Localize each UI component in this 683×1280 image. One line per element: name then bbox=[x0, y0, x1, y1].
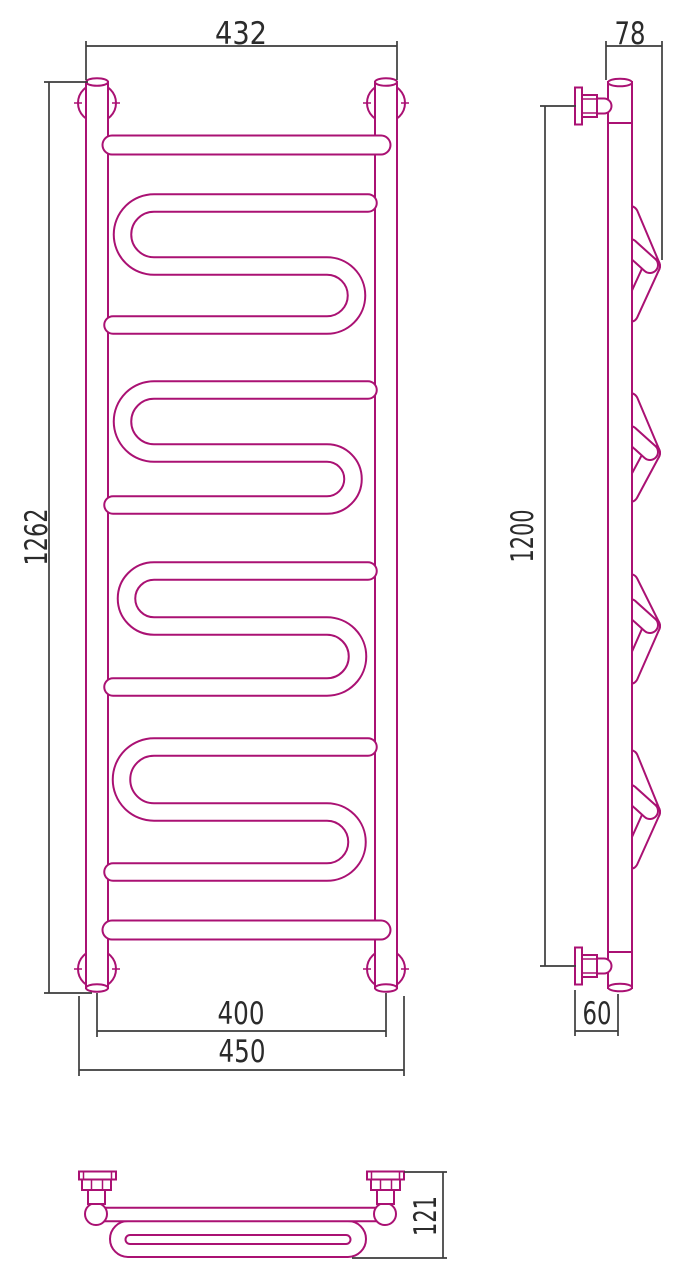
dim-label-1262: 1262 bbox=[19, 509, 55, 566]
side-coil-1 bbox=[630, 214, 652, 314]
serpentine-coil-2 bbox=[113, 390, 368, 505]
dim-label-400: 400 bbox=[218, 996, 265, 1032]
top-wall-bracket-right bbox=[367, 1172, 404, 1205]
side-coil-2 bbox=[630, 401, 652, 494]
top-wall-bracket-left bbox=[79, 1172, 116, 1205]
dim-label-1200: 1200 bbox=[505, 510, 541, 563]
side-coil-3 bbox=[630, 582, 652, 676]
serpentine-coil-4 bbox=[113, 747, 368, 872]
front-view: 432 1262 400 450 bbox=[19, 16, 409, 1076]
side-wall-bracket-bottom bbox=[575, 948, 604, 985]
dim-label-432: 432 bbox=[215, 16, 267, 52]
side-view: 78 1200 60 bbox=[505, 16, 662, 1036]
side-post-cap-top bbox=[608, 79, 632, 87]
side-wall-bracket-top bbox=[575, 88, 604, 125]
dimension-mount-height: 1200 bbox=[505, 106, 576, 966]
left-post bbox=[86, 82, 108, 988]
dim-label-78: 78 bbox=[615, 16, 646, 52]
side-post bbox=[608, 82, 632, 988]
serpentine-coil-3 bbox=[113, 571, 368, 687]
technical-drawing-page: 432 1262 400 450 bbox=[0, 0, 683, 1280]
side-post-cap-bottom bbox=[608, 984, 632, 992]
dim-label-60: 60 bbox=[583, 996, 612, 1032]
dimension-mount-spacing: 400 bbox=[97, 993, 386, 1037]
dim-label-450: 450 bbox=[219, 1034, 266, 1070]
dimension-wall-offset: 60 bbox=[575, 990, 618, 1036]
towel-rail-drawing: 432 1262 400 450 bbox=[0, 0, 683, 1280]
top-view: 121 bbox=[79, 1172, 447, 1259]
top-post-right bbox=[374, 1203, 396, 1225]
dimension-height-overall: 1262 bbox=[19, 82, 92, 993]
top-coil-loop bbox=[110, 1221, 366, 1257]
dim-label-121: 121 bbox=[408, 1196, 444, 1236]
side-coil-4 bbox=[630, 758, 652, 861]
right-post bbox=[375, 82, 397, 988]
top-post-left bbox=[85, 1203, 107, 1225]
dimension-width-top: 432 bbox=[86, 16, 397, 80]
serpentine-coil-1 bbox=[113, 203, 368, 325]
